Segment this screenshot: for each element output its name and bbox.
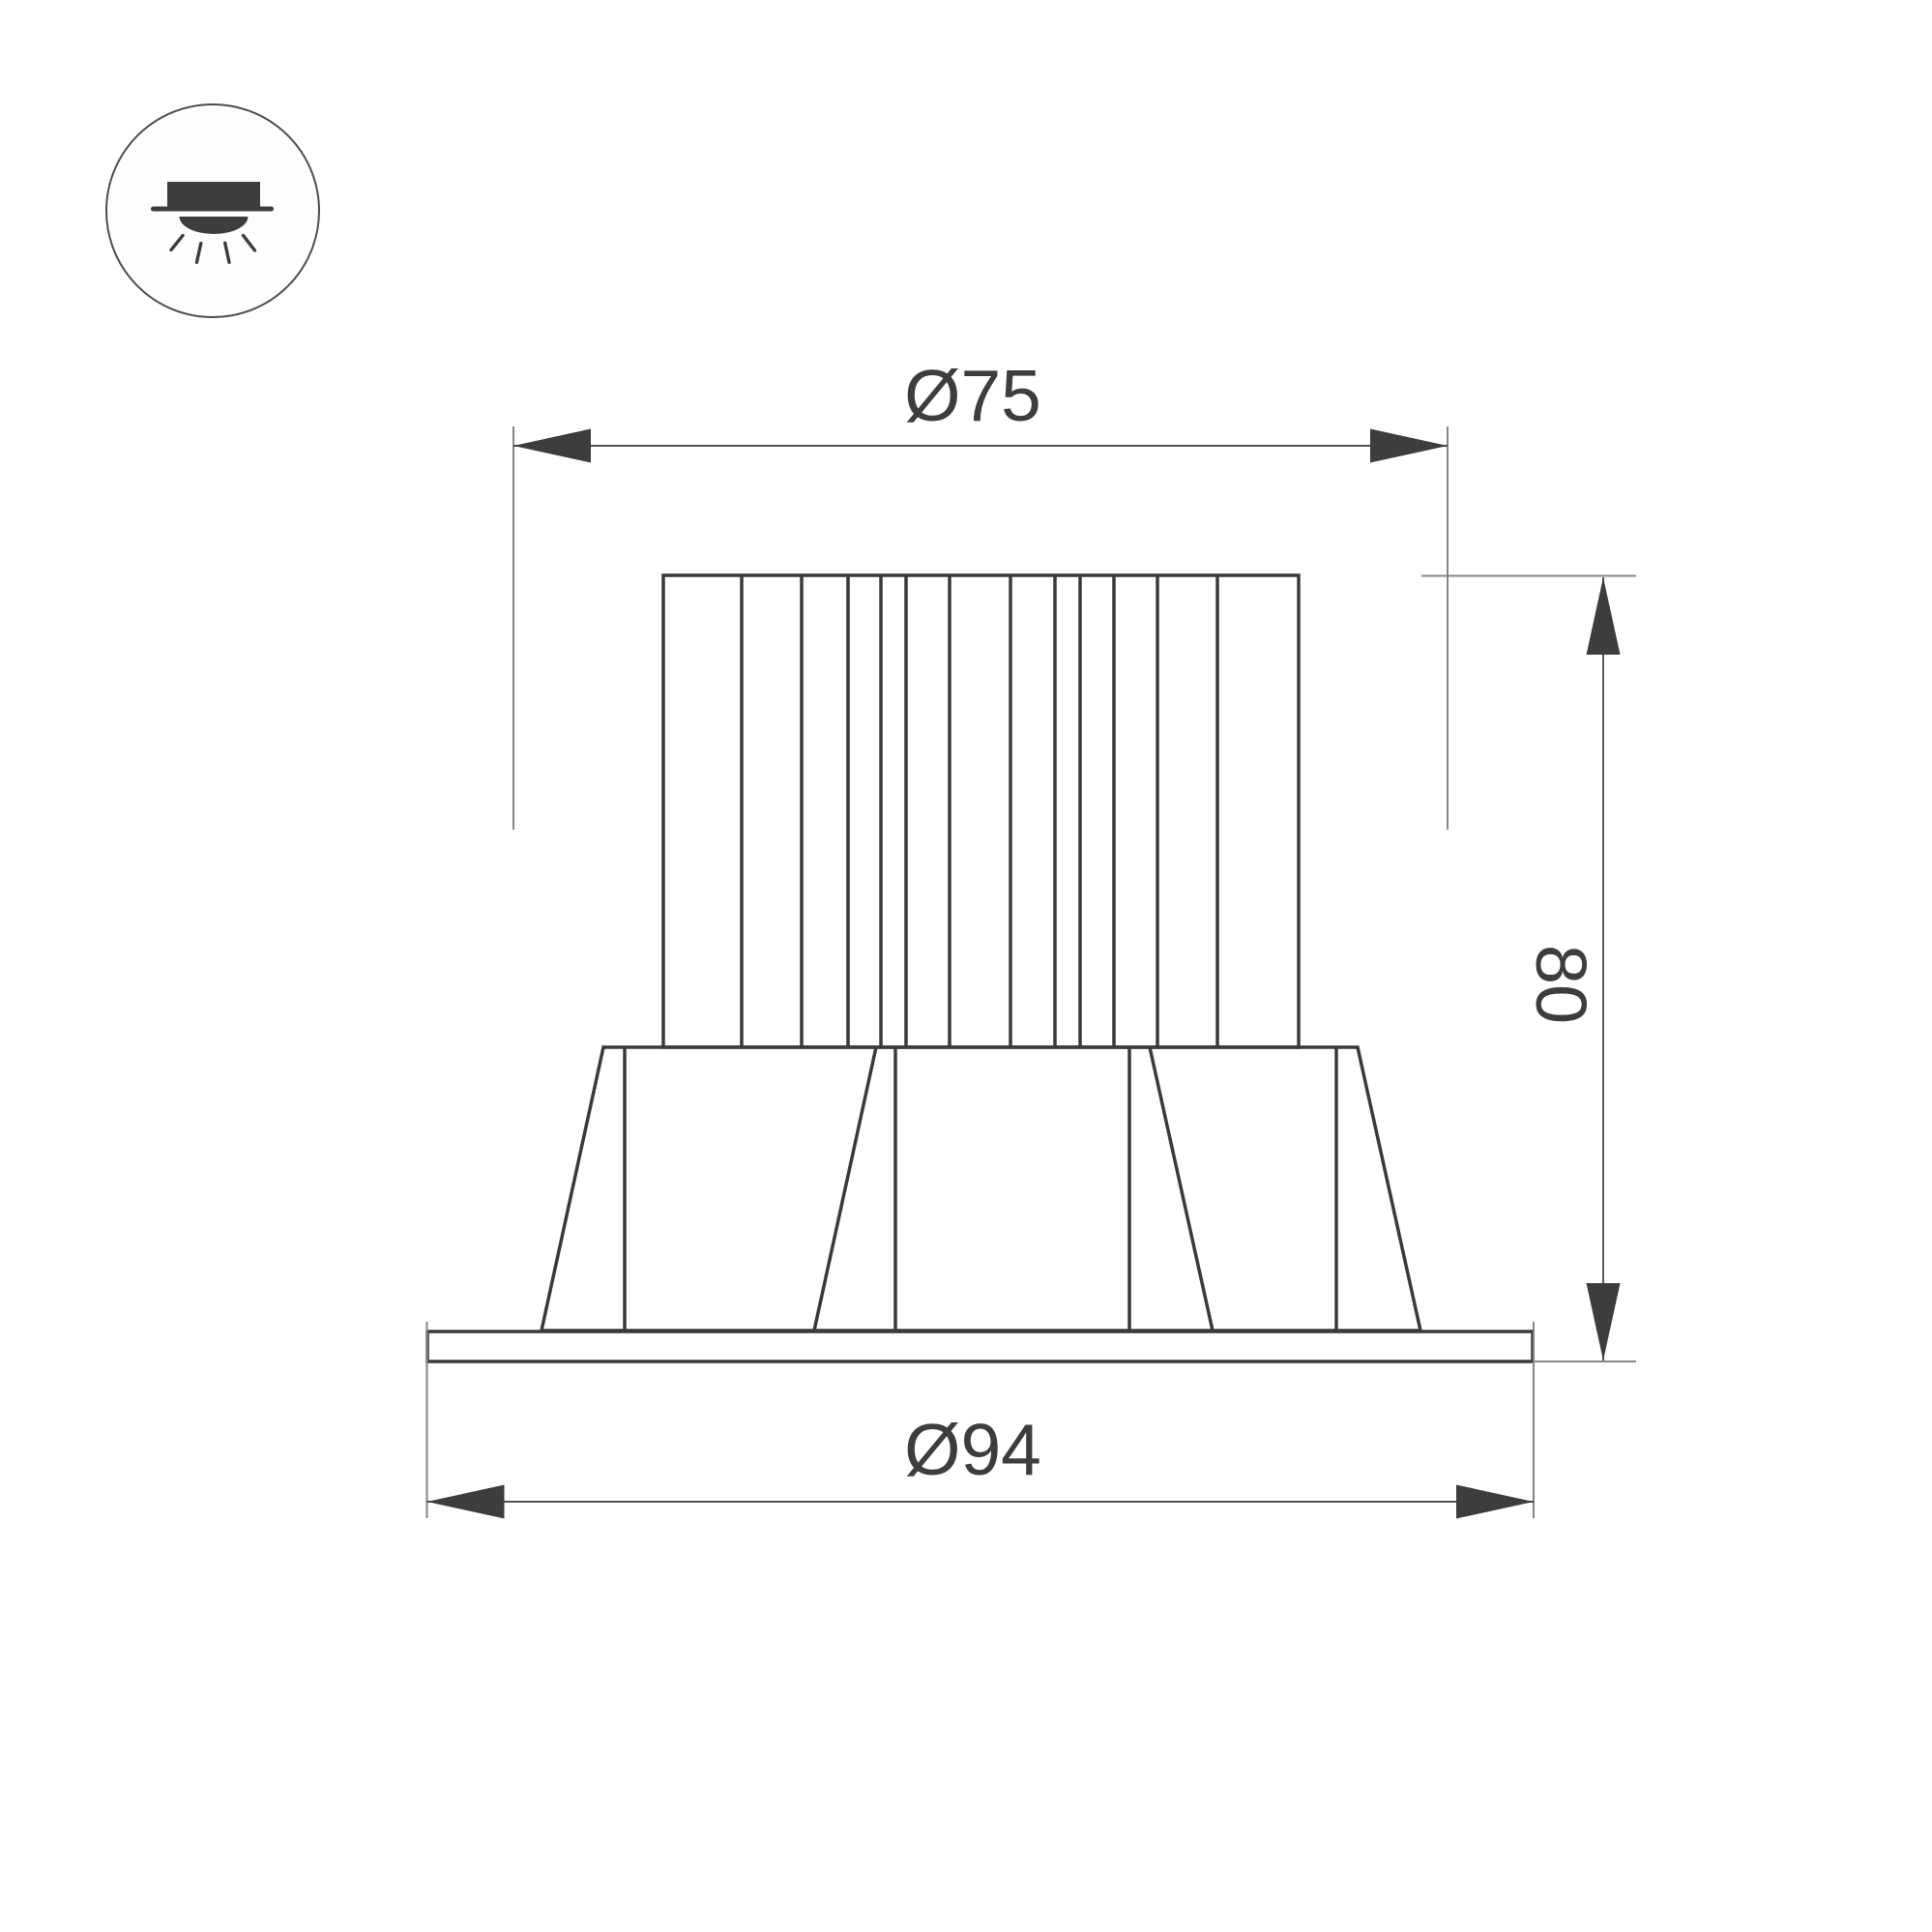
svg-text:Ø94: Ø94 <box>904 1409 1041 1490</box>
svg-text:80: 80 <box>1521 945 1601 1024</box>
svg-text:Ø75: Ø75 <box>904 355 1041 436</box>
